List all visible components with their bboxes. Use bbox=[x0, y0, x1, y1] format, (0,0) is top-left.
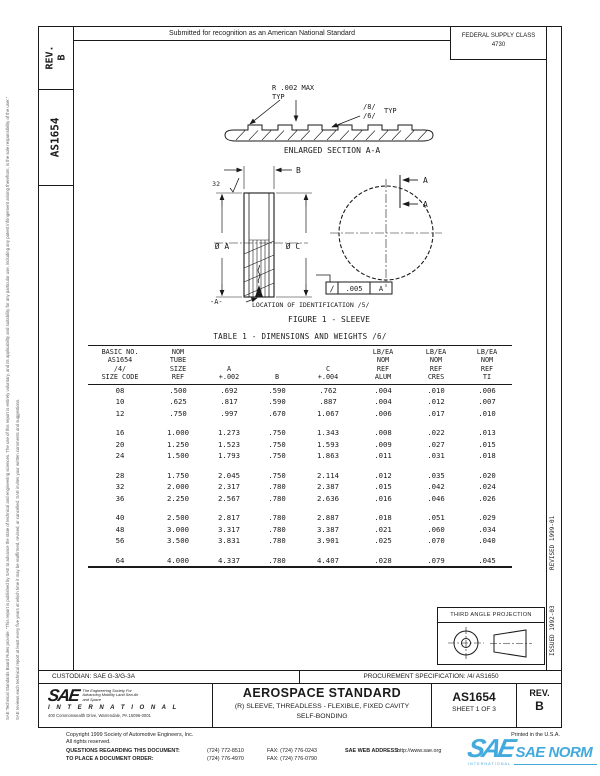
standard-type: AEROSPACE STANDARD bbox=[213, 686, 431, 700]
table-cell: 64 bbox=[88, 555, 152, 568]
federal-supply-class-box: FEDERAL SUPPLY CLASS 4730 bbox=[450, 26, 546, 60]
table-cell: 10 bbox=[88, 396, 152, 408]
table-cell: 3.831 bbox=[204, 535, 254, 547]
right-strip bbox=[546, 26, 562, 670]
table-row: 563.5003.831.7803.901.025.070.040 bbox=[88, 535, 512, 547]
table-cell: .004 bbox=[356, 396, 410, 408]
rev-cell: REV. B bbox=[517, 684, 562, 728]
table-cell: .013 bbox=[462, 427, 512, 439]
left-margin-note-2: SAE reviews each technical report at lea… bbox=[16, 58, 21, 720]
order-phone: (724) 776-4970 bbox=[207, 756, 244, 762]
table-cell: .762 bbox=[300, 384, 356, 396]
table-cell: 3.387 bbox=[300, 524, 356, 536]
left-margin-note-1: SAE Technical Standards Board Rules prov… bbox=[6, 58, 11, 720]
table-cell: 4.337 bbox=[204, 555, 254, 568]
table-cell: 2.817 bbox=[204, 512, 254, 524]
title-block: SAE The Engineering Society For Advancin… bbox=[38, 684, 562, 728]
table-row: 644.0004.337.7804.407.028.079.045 bbox=[88, 555, 512, 568]
figure-1-drawing: R .002 MAX TYP /8/ /6/ TYP ENLARGED SECT… bbox=[76, 78, 546, 328]
table-row: 10.625.817.590.887.004.012.007 bbox=[88, 396, 512, 408]
table-cell: .780 bbox=[254, 555, 300, 568]
col-cres: LB/EA NOM REF CRES bbox=[410, 346, 462, 385]
enlarged-section bbox=[225, 100, 433, 141]
sleeve-end-view bbox=[330, 175, 442, 287]
table-cell: 4.407 bbox=[300, 555, 356, 568]
surface-finish-value: 32 bbox=[212, 180, 220, 188]
rev-cell-value: B bbox=[517, 699, 562, 713]
dia-c-label: Ø C bbox=[286, 241, 301, 251]
table-group-gap bbox=[88, 504, 512, 512]
table-cell: 2.114 bbox=[300, 470, 356, 482]
table-cell: .034 bbox=[462, 524, 512, 536]
table-row: 201.2501.523.7501.593.009.027.015 bbox=[88, 439, 512, 451]
table-cell: .010 bbox=[462, 408, 512, 420]
table-row: 402.5002.817.7802.887.018.051.029 bbox=[88, 512, 512, 524]
table-cell: 40 bbox=[88, 512, 152, 524]
table-cell: .750 bbox=[254, 427, 300, 439]
sae-norm-watermark: SAE SAE NORM INTERNATIONAL bbox=[468, 737, 600, 766]
table-cell: .070 bbox=[410, 535, 462, 547]
table-cell: .028 bbox=[356, 555, 410, 568]
table-cell: .035 bbox=[410, 470, 462, 482]
table-cell: 3.500 bbox=[152, 535, 204, 547]
table-cell: .029 bbox=[462, 512, 512, 524]
table-cell: 20 bbox=[88, 439, 152, 451]
table-group-gap bbox=[88, 419, 512, 427]
projection-label: THIRD ANGLE PROJECTION bbox=[438, 608, 544, 623]
table-cell: .780 bbox=[254, 512, 300, 524]
order-fax: FAX: (724) 776-0790 bbox=[267, 756, 317, 762]
questions-phone: (724) 772-8510 bbox=[207, 748, 244, 754]
table-cell: 3.317 bbox=[204, 524, 254, 536]
table-cell: 3.901 bbox=[300, 535, 356, 547]
dia-a-label: Ø A bbox=[215, 241, 230, 251]
watermark-sae-logo: SAE bbox=[466, 737, 515, 760]
flag-6-note: /6/ bbox=[363, 112, 376, 120]
table-cell: 28 bbox=[88, 470, 152, 482]
table-cell: 36 bbox=[88, 493, 152, 505]
web-value: http://www.sae.org bbox=[397, 748, 441, 754]
table-cell: 1.750 bbox=[152, 470, 204, 482]
table-cell: .018 bbox=[356, 512, 410, 524]
table-cell: 4.000 bbox=[152, 555, 204, 568]
table-cell: .011 bbox=[356, 450, 410, 462]
table-cell: .010 bbox=[410, 384, 462, 396]
issued-date: ISSUED 1992-03 bbox=[549, 582, 556, 656]
table-row: 483.0003.317.7803.387.021.060.034 bbox=[88, 524, 512, 536]
sae-address: 400 Commonwealth Drive, Warrendale, PA 1… bbox=[48, 713, 208, 718]
table-row: 241.5001.793.7501.863.011.031.018 bbox=[88, 450, 512, 462]
rights-line: All rights reserved. bbox=[66, 739, 111, 745]
table-cell: .625 bbox=[152, 396, 204, 408]
table-cell: .750 bbox=[254, 450, 300, 462]
questions-fax: FAX: (724) 776-0243 bbox=[267, 748, 317, 754]
table-cell: 16 bbox=[88, 427, 152, 439]
table-cell: .017 bbox=[410, 408, 462, 420]
table-cell: .692 bbox=[204, 384, 254, 396]
table-cell: .012 bbox=[410, 396, 462, 408]
table-cell: .006 bbox=[462, 384, 512, 396]
standard-title-line1: (R) SLEEVE, THREADLESS - FLEXIBLE, FIXED… bbox=[213, 702, 431, 712]
table-cell: 1.593 bbox=[300, 439, 356, 451]
radius-note-line1: R .002 MAX bbox=[272, 84, 315, 92]
enlarged-section-caption: ENLARGED SECTION A-A bbox=[284, 146, 381, 155]
table-cell: .750 bbox=[254, 470, 300, 482]
table-row: 12.750.997.6701.067.006.017.010 bbox=[88, 408, 512, 420]
table-cell: .008 bbox=[356, 427, 410, 439]
table-cell: .750 bbox=[254, 439, 300, 451]
col-size-code: BASIC NO. AS1654 /4/ SIZE CODE bbox=[88, 346, 152, 385]
sae-logo: SAE bbox=[47, 687, 80, 704]
table-cell: 12 bbox=[88, 408, 152, 420]
table-1-section: TABLE 1 - DIMENSIONS AND WEIGHTS /6/ BAS… bbox=[88, 332, 512, 568]
web-label: SAE WEB ADDRESS: bbox=[345, 748, 400, 754]
table-cell: .016 bbox=[356, 493, 410, 505]
custodian-row: CUSTODIAN: SAE G-3/G-3A PROCUREMENT SPEC… bbox=[38, 670, 562, 684]
table-cell: .079 bbox=[410, 555, 462, 568]
table-cell: .590 bbox=[254, 384, 300, 396]
watermark-norm-text: SAE NORM bbox=[515, 744, 592, 761]
table-cell: .060 bbox=[410, 524, 462, 536]
table-row: 362.2502.567.7802.636.016.046.026 bbox=[88, 493, 512, 505]
table-row: 08.500.692.590.762.004.010.006 bbox=[88, 384, 512, 396]
sleeve-side-view bbox=[214, 166, 312, 297]
radius-note-line2: TYP bbox=[272, 93, 285, 101]
table-cell: .590 bbox=[254, 396, 300, 408]
table-cell: .750 bbox=[152, 408, 204, 420]
table-cell: .006 bbox=[356, 408, 410, 420]
table-cell: 56 bbox=[88, 535, 152, 547]
table-row: 322.0002.317.7802.387.015.042.024 bbox=[88, 481, 512, 493]
table-cell: .020 bbox=[462, 470, 512, 482]
watermark-rule bbox=[514, 764, 597, 765]
table-cell: .051 bbox=[410, 512, 462, 524]
third-angle-projection-box: THIRD ANGLE PROJECTION bbox=[437, 607, 545, 665]
standard-title-cell: AEROSPACE STANDARD (R) SLEEVE, THREADLES… bbox=[213, 684, 432, 728]
table-cell: 2.500 bbox=[152, 512, 204, 524]
order-label: TO PLACE A DOCUMENT ORDER: bbox=[66, 756, 154, 762]
table-cell: 1.523 bbox=[204, 439, 254, 451]
fsc-code: 4730 bbox=[451, 41, 546, 50]
location-note: LOCATION OF IDENTIFICATION /5/ bbox=[252, 301, 369, 309]
table-cell: .022 bbox=[410, 427, 462, 439]
table-body: 08.500.692.590.762.004.010.00610.625.817… bbox=[88, 384, 512, 567]
table-title: TABLE 1 - DIMENSIONS AND WEIGHTS /6/ bbox=[88, 332, 512, 341]
ansi-note: Submitted for recognition as an American… bbox=[74, 26, 450, 41]
table-row: 281.7502.045.7502.114.012.035.020 bbox=[88, 470, 512, 482]
table-cell: 1.343 bbox=[300, 427, 356, 439]
table-cell: .046 bbox=[410, 493, 462, 505]
table-cell: .024 bbox=[462, 481, 512, 493]
table-cell: 2.317 bbox=[204, 481, 254, 493]
fcf-datum: A bbox=[379, 285, 384, 293]
table-cell: 2.887 bbox=[300, 512, 356, 524]
table-cell: .021 bbox=[356, 524, 410, 536]
table-cell: 1.250 bbox=[152, 439, 204, 451]
table-cell: 2.387 bbox=[300, 481, 356, 493]
copyright-line: Copyright 1999 Society of Automotive Eng… bbox=[66, 732, 193, 738]
doc-number-box: AS1654 bbox=[38, 90, 74, 186]
table-cell: .031 bbox=[410, 450, 462, 462]
table-cell: .817 bbox=[204, 396, 254, 408]
sae-tagline: The Engineering Society For Advancing Mo… bbox=[82, 689, 142, 702]
table-cell: 1.793 bbox=[204, 450, 254, 462]
table-cell: 08 bbox=[88, 384, 152, 396]
doc-number: AS1654 bbox=[432, 690, 516, 704]
table-cell: .780 bbox=[254, 535, 300, 547]
table-cell: .004 bbox=[356, 384, 410, 396]
custodian-cell: CUSTODIAN: SAE G-3/G-3A bbox=[38, 671, 300, 683]
table-cell: 2.250 bbox=[152, 493, 204, 505]
table-cell: .012 bbox=[356, 470, 410, 482]
col-c: C +.004 bbox=[300, 346, 356, 385]
table-cell: 2.045 bbox=[204, 470, 254, 482]
sae-logo-cell: SAE The Engineering Society For Advancin… bbox=[38, 684, 213, 728]
table-cell: 1.500 bbox=[152, 450, 204, 462]
rev-box: REV. B bbox=[38, 26, 74, 90]
typ-note: TYP bbox=[384, 107, 397, 115]
sheet-number: SHEET 1 OF 3 bbox=[432, 706, 516, 713]
table-cell: .670 bbox=[254, 408, 300, 420]
table-cell: .007 bbox=[462, 396, 512, 408]
col-nom-tube: NOM TUBE SIZE REF bbox=[152, 346, 204, 385]
table-cell: 2.567 bbox=[204, 493, 254, 505]
fsc-label: FEDERAL SUPPLY CLASS bbox=[451, 32, 546, 41]
table-cell: 1.000 bbox=[152, 427, 204, 439]
table-cell: .027 bbox=[410, 439, 462, 451]
col-ti: LB/EA NOM REF TI bbox=[462, 346, 512, 385]
figure-caption: FIGURE 1 - SLEEVE bbox=[288, 315, 370, 324]
table-cell: .045 bbox=[462, 555, 512, 568]
table-group-gap bbox=[88, 462, 512, 470]
table-cell: 48 bbox=[88, 524, 152, 536]
doc-number-cell: AS1654 SHEET 1 OF 3 bbox=[432, 684, 517, 728]
doc-number-vertical: AS1654 bbox=[50, 118, 63, 158]
procurement-cell: PROCUREMENT SPECIFICATION: /4/ AS1650 bbox=[300, 671, 562, 683]
fcf-symbol: ∕ bbox=[330, 285, 335, 294]
table-cell: .887 bbox=[300, 396, 356, 408]
section-a-top-label: A bbox=[423, 176, 428, 185]
table-cell: 24 bbox=[88, 450, 152, 462]
table-row: 161.0001.273.7501.343.008.022.013 bbox=[88, 427, 512, 439]
questions-label: QUESTIONS REGARDING THIS DOCUMENT: bbox=[66, 748, 180, 754]
left-sidebar: REV. B AS1654 bbox=[38, 26, 74, 670]
table-cell: .042 bbox=[410, 481, 462, 493]
table-cell: .040 bbox=[462, 535, 512, 547]
table-cell: .780 bbox=[254, 481, 300, 493]
table-cell: 1.863 bbox=[300, 450, 356, 462]
table-cell: 1.273 bbox=[204, 427, 254, 439]
dim-b-label: B bbox=[296, 166, 301, 175]
col-alum: LB/EA NOM REF ALUM bbox=[356, 346, 410, 385]
table-cell: .015 bbox=[356, 481, 410, 493]
table-cell: .026 bbox=[462, 493, 512, 505]
standard-title-line2: SELF-BONDING bbox=[213, 712, 431, 722]
projection-symbol bbox=[438, 623, 543, 664]
document-page: SAE Technical Standards Board Rules prov… bbox=[0, 0, 600, 776]
table-cell: 2.000 bbox=[152, 481, 204, 493]
table-cell: 2.636 bbox=[300, 493, 356, 505]
table-cell: .015 bbox=[462, 439, 512, 451]
col-a: A +.002 bbox=[204, 346, 254, 385]
table-cell: .018 bbox=[462, 450, 512, 462]
fcf-tolerance: .005 bbox=[346, 285, 363, 293]
table-cell: .500 bbox=[152, 384, 204, 396]
table-cell: 32 bbox=[88, 481, 152, 493]
table-header-row: BASIC NO. AS1654 /4/ SIZE CODE NOM TUBE … bbox=[88, 346, 512, 385]
section-a-bottom-label: A bbox=[423, 200, 428, 209]
table-cell: .780 bbox=[254, 524, 300, 536]
datum-a-label: -A- bbox=[210, 298, 223, 306]
revised-date: REVISED 1999-01 bbox=[549, 494, 556, 570]
table-cell: .997 bbox=[204, 408, 254, 420]
rev-label: REV. B bbox=[45, 45, 68, 69]
table-cell: .025 bbox=[356, 535, 410, 547]
col-b: B bbox=[254, 346, 300, 385]
dimensions-table: BASIC NO. AS1654 /4/ SIZE CODE NOM TUBE … bbox=[88, 345, 512, 568]
table-cell: .780 bbox=[254, 493, 300, 505]
sae-international: I N T E R N A T I O N A L bbox=[48, 705, 208, 711]
rev-cell-label: REV. bbox=[517, 688, 562, 698]
flag-8-note: /8/ bbox=[363, 103, 376, 111]
table-cell: .009 bbox=[356, 439, 410, 451]
table-group-gap bbox=[88, 547, 512, 555]
table-cell: 3.000 bbox=[152, 524, 204, 536]
table-cell: 1.067 bbox=[300, 408, 356, 420]
